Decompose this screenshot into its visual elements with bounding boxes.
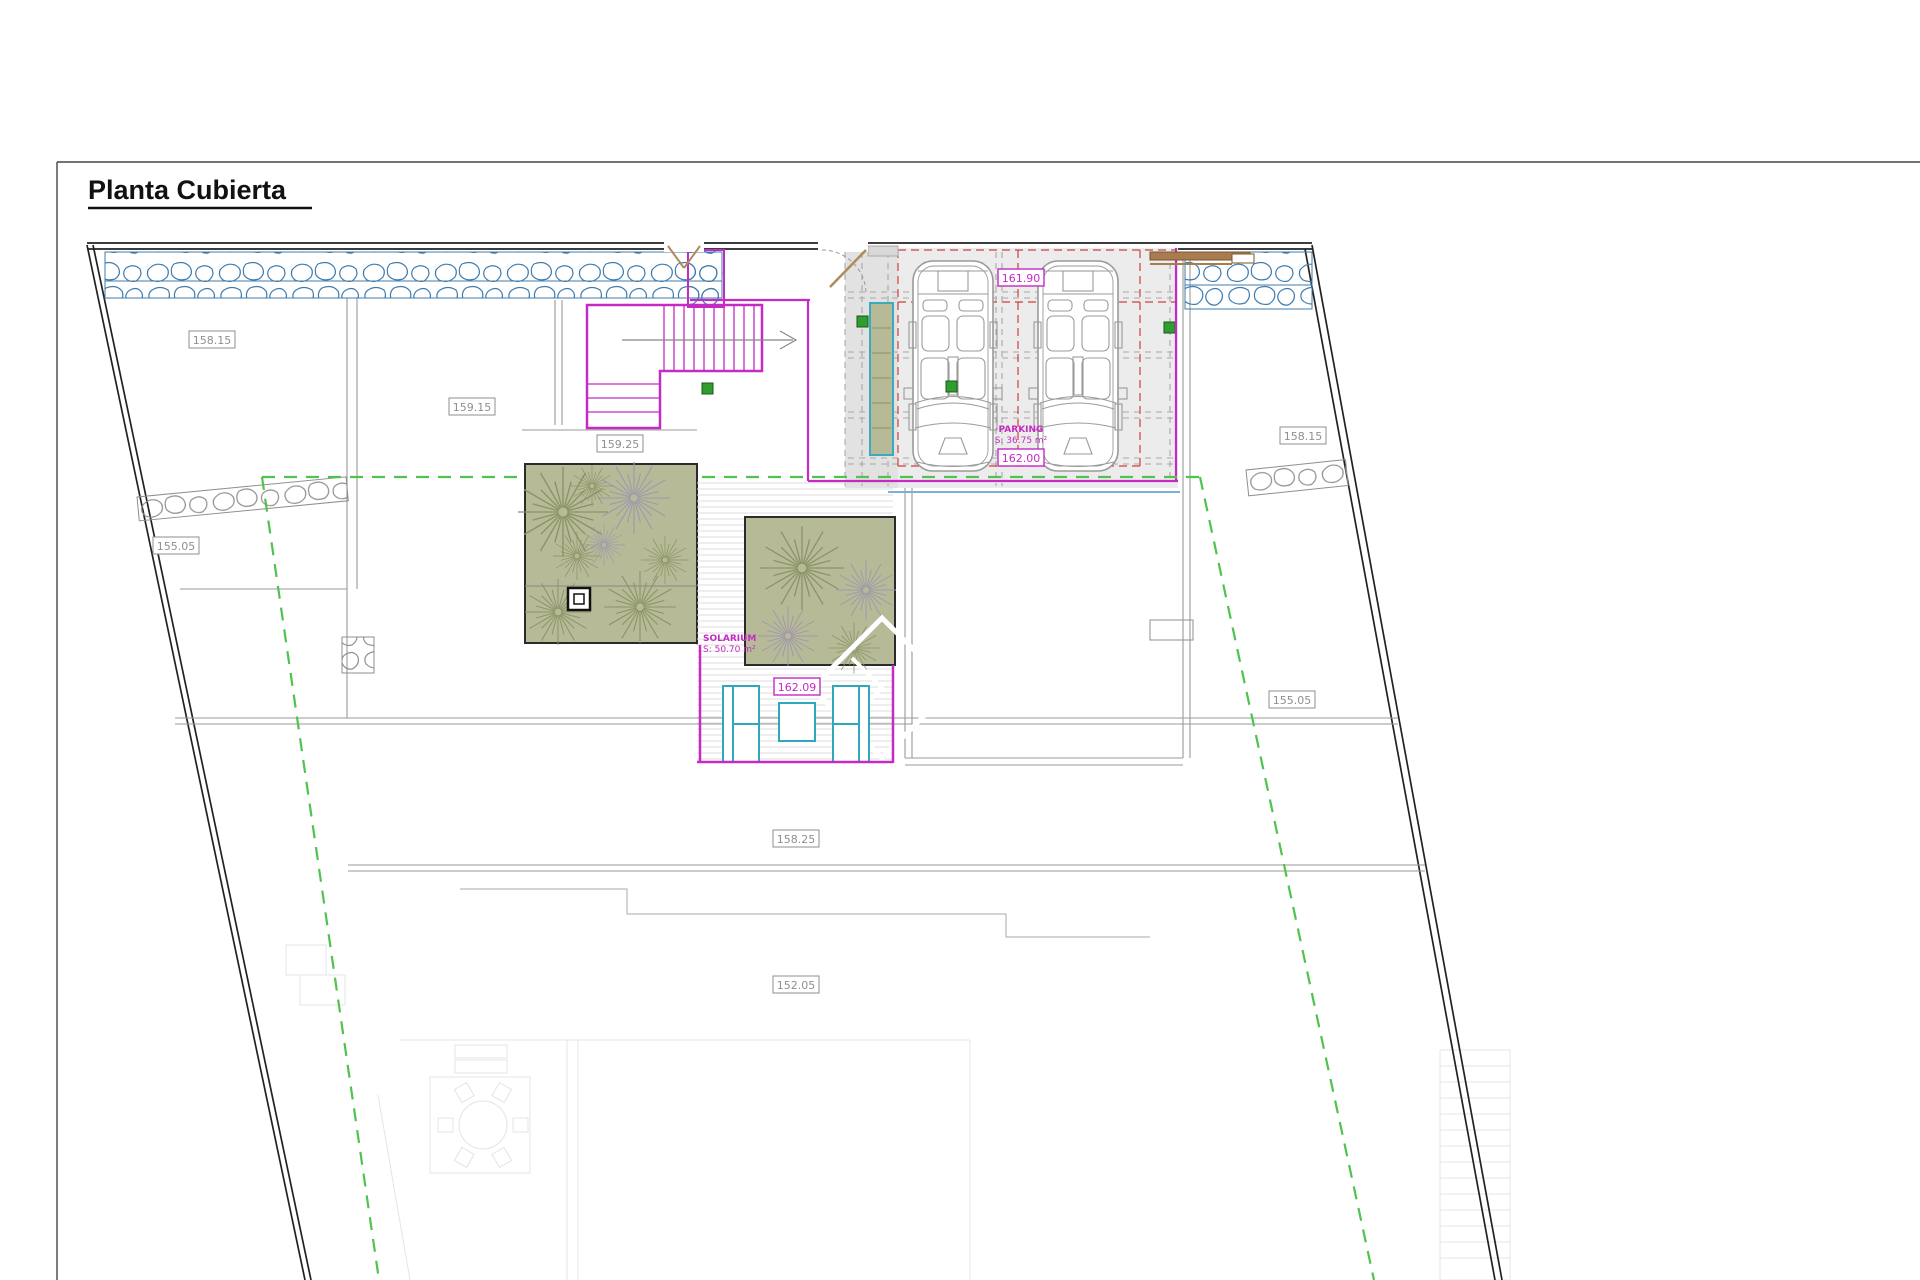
skylight-marker [568,588,590,610]
threshold [868,246,898,256]
stone-block-small [342,637,374,673]
elevation-label: 159.15 [453,401,492,414]
level-label: 162.09 [778,681,817,694]
roof-plan-drawing: Planta Cubierta [0,0,1920,1280]
parking-area [690,246,1254,492]
elevation-label: 155.05 [157,540,196,553]
level-label: 162.00 [1002,452,1041,465]
planter [870,303,893,455]
stone-wall-right-mid [1246,460,1348,496]
elevation-label: 158.15 [193,334,232,347]
solarium-name: SOLARIUM [703,634,756,644]
stone-wall-magenta-cap [688,250,724,307]
elevation-label: 158.25 [777,833,816,846]
stone-wall-left-mid [137,477,348,521]
lower-floor-faint-outlines [286,945,1510,1280]
roof-garden-small [745,517,895,665]
elevation-label: 159.25 [601,438,640,451]
staircase [587,305,796,428]
level-label: 161.90 [1002,272,1041,285]
lower-floor-dining-table [438,1083,528,1168]
lower-floor-stair-faint [1440,1050,1510,1280]
elevation-label: 152.05 [777,979,816,992]
solarium-area: S: 50.70 m² [703,645,756,655]
parking-name: PARKING [999,425,1044,435]
elevation-label: 155.05 [1273,694,1312,707]
roof-garden-large [518,462,697,645]
solarium-label: SOLARIUM S: 50.70 m² [703,634,756,655]
solarium-deck [697,481,952,763]
car-left [904,261,1002,471]
page-title: Planta Cubierta [88,175,287,205]
parking-label: PARKING S: 36.75 m² [995,425,1048,446]
elevation-label: 158.15 [1284,430,1323,443]
coffee-table [779,703,815,741]
stone-wall-top-left [105,252,722,298]
parking-area: S: 36.75 m² [995,436,1048,446]
